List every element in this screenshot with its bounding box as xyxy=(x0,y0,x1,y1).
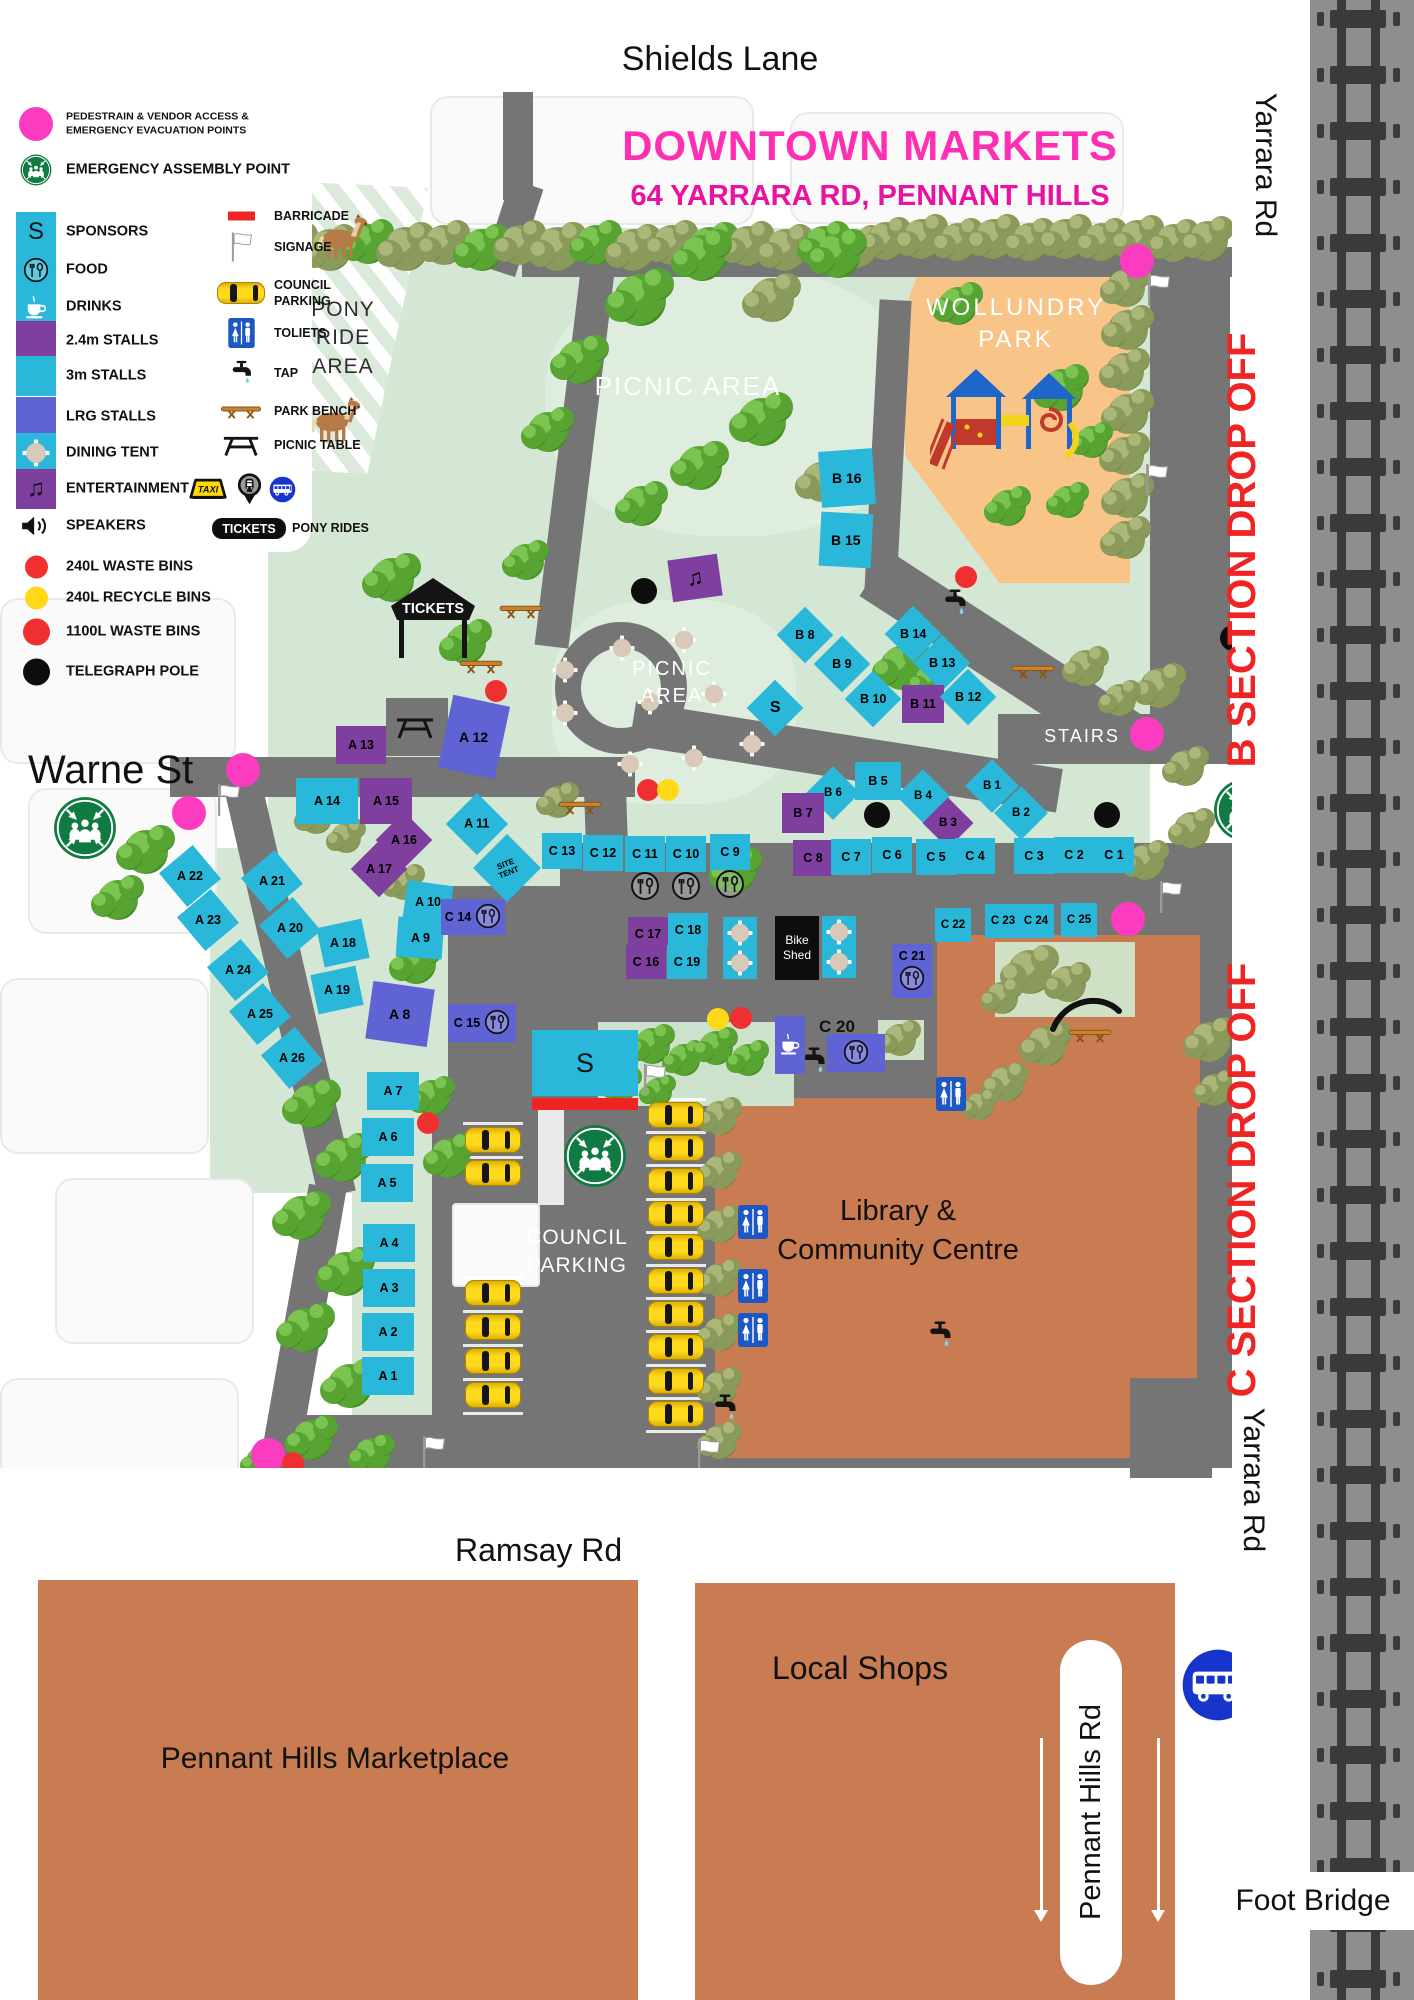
barricade xyxy=(532,1098,638,1110)
railway-bolt xyxy=(1317,1188,1324,1202)
stall-label: A 12 xyxy=(459,729,488,745)
parking-walkway xyxy=(538,1100,564,1205)
council-parking-label: COUNCILPARKING xyxy=(487,1224,667,1281)
stall-label: S xyxy=(770,699,781,717)
railway-bolt xyxy=(1393,12,1400,26)
food-icon xyxy=(484,1009,510,1038)
railway-bolt xyxy=(1393,964,1400,978)
railway-bolt xyxy=(1393,1692,1400,1706)
dining-tent xyxy=(723,917,757,979)
stall-label: B 3 xyxy=(939,817,957,829)
waste-bin-dot xyxy=(417,1112,439,1134)
legend-label: PICNIC TABLE xyxy=(274,437,361,453)
market-map: TICKETSA 13A 12A 14A 15A 16A 17A 11A 22A… xyxy=(0,0,1414,2000)
tree xyxy=(280,1196,324,1240)
stall-label: A 21 xyxy=(259,874,285,888)
railway-bolt xyxy=(1317,12,1324,26)
waste-bin-dot xyxy=(955,566,977,588)
dining-table-icon xyxy=(552,657,578,688)
page-subtitle: 64 YARRARA RD, PENNANT HILLS xyxy=(560,180,1180,213)
recycle-bin-dot xyxy=(657,779,679,801)
stall-c25: C 25 xyxy=(1061,903,1097,937)
tree xyxy=(284,1308,328,1352)
tree xyxy=(331,823,361,853)
legend-label: DINING TENT xyxy=(66,444,159,463)
railway-bolt xyxy=(1393,1076,1400,1090)
tree xyxy=(1174,812,1210,848)
signage-flag-icon xyxy=(641,1063,667,1102)
stall-label: B 14 xyxy=(900,627,926,641)
traffic-arrow-down xyxy=(1157,1738,1160,1918)
railway-bolt xyxy=(1393,1748,1400,1762)
railway-bolt xyxy=(1393,404,1400,418)
stall-label: C 24 xyxy=(1024,915,1048,927)
taxi-car xyxy=(465,1280,521,1306)
tree xyxy=(614,274,666,326)
railway-bolt xyxy=(1317,1300,1324,1314)
tree xyxy=(966,1092,994,1120)
tree xyxy=(750,278,794,322)
railway-bolt xyxy=(1393,1020,1400,1034)
parking-slot-line xyxy=(463,1378,523,1381)
stall-label: A 14 xyxy=(314,794,340,808)
signage-flag-icon xyxy=(1145,273,1171,312)
stall-label: A 18 xyxy=(330,936,356,950)
pennant-hills-rd-label: Pennant Hills Rd xyxy=(1061,1642,1121,1982)
tree xyxy=(1076,426,1108,458)
railway-bolt xyxy=(1393,1188,1400,1202)
railway-bolt xyxy=(1393,684,1400,698)
railway-bolt xyxy=(1317,1636,1324,1650)
legend-label: DRINKS xyxy=(66,298,122,317)
railway-bolt xyxy=(1317,740,1324,754)
tree xyxy=(703,1155,737,1189)
railway-bolt xyxy=(1393,180,1400,194)
sponsors-icon: S xyxy=(14,212,58,252)
stall-c2: C 2 xyxy=(1054,837,1094,873)
svg-text:TICKETS: TICKETS xyxy=(402,601,464,617)
stairs-label: STAIRS xyxy=(1022,726,1142,747)
stall-label: A 19 xyxy=(324,983,350,997)
legend-label: BARRICADE xyxy=(274,208,349,224)
railway-bolt xyxy=(1317,124,1324,138)
railway-bolt xyxy=(1393,1412,1400,1426)
stall-a14: A 14 xyxy=(296,778,358,824)
stall-c23: C 23 xyxy=(985,904,1021,938)
stall-label: C 10 xyxy=(673,847,699,861)
waste-bin-dot xyxy=(485,680,507,702)
railway-bolt xyxy=(1393,1132,1400,1146)
stall-label: B 8 xyxy=(795,628,814,642)
stall-b5: B 5 xyxy=(855,762,901,800)
tree xyxy=(1140,668,1180,708)
stall-label: A 13 xyxy=(348,738,374,752)
railway-bolt xyxy=(1317,1020,1324,1034)
stall-label: A 26 xyxy=(279,1051,305,1065)
stall-label: B 16 xyxy=(832,470,862,486)
dining-table-icon xyxy=(681,745,707,776)
taxi-car xyxy=(465,1348,521,1374)
stall xyxy=(775,1016,805,1074)
railway-bolt xyxy=(1393,124,1400,138)
legend-label: 240L WASTE BINS xyxy=(66,558,193,577)
stall-label: A 11 xyxy=(464,817,489,831)
tree xyxy=(679,235,725,281)
stall-label: B 13 xyxy=(929,656,955,670)
stall: ♫ xyxy=(667,554,722,603)
stall-label: A 2 xyxy=(379,1325,398,1339)
railway-bolt xyxy=(1317,516,1324,530)
signage-flag-icon xyxy=(1143,463,1169,502)
stall-b7: B 7 xyxy=(782,793,824,833)
railway-bolt xyxy=(1317,628,1324,642)
picnic-table-icon xyxy=(394,714,436,745)
tree xyxy=(986,982,1018,1014)
stall-c24: C 24 xyxy=(1018,904,1054,938)
library-label: Library &Community Centre xyxy=(733,1192,1063,1270)
stall-label: B 6 xyxy=(824,787,842,799)
telegraph-pole-dot xyxy=(864,802,890,828)
stall-label: C 25 xyxy=(1067,914,1091,926)
stall-b15: B 15 xyxy=(819,512,874,569)
stall-label: A 20 xyxy=(277,921,303,935)
tap-icon xyxy=(940,588,970,623)
tree xyxy=(430,1138,470,1178)
taxi-car xyxy=(648,1368,704,1394)
stall-label: C 2 xyxy=(1064,848,1083,862)
waste-bin-dot xyxy=(637,779,659,801)
stall-label: C 7 xyxy=(841,850,860,864)
food-icon xyxy=(715,869,745,904)
tree xyxy=(1107,521,1145,559)
stall-a7: A 7 xyxy=(367,1072,419,1110)
stall-c7: C 7 xyxy=(831,839,871,875)
parking-slot-line xyxy=(646,1164,706,1167)
stall-label: C 8 xyxy=(803,851,822,865)
council-parking-icon xyxy=(212,282,270,304)
access-point-dot xyxy=(1120,244,1154,278)
railway-bolt xyxy=(1317,572,1324,586)
barricade-icon xyxy=(212,212,270,221)
tree xyxy=(703,1263,737,1297)
railway-bolt xyxy=(1393,628,1400,642)
railway-bolt xyxy=(1393,740,1400,754)
stall-c3: C 3 xyxy=(1014,838,1054,874)
access-point-dot xyxy=(1111,902,1145,936)
legend-label: LRG STALLS xyxy=(66,408,156,427)
stall-c8: C 8 xyxy=(793,840,833,876)
railway-bolt xyxy=(1317,1468,1324,1482)
waste-bin-icon xyxy=(14,556,58,579)
picnic-area-2-label: PICNICAREA xyxy=(592,656,752,710)
stall-label: C 13 xyxy=(549,844,575,858)
railway-bolt xyxy=(1317,1580,1324,1594)
railway-bolt xyxy=(1393,796,1400,810)
railway-bolt xyxy=(1317,404,1324,418)
railway-bolt xyxy=(1317,1132,1324,1146)
stall-label: A 16 xyxy=(391,833,417,847)
stall-label: C 4 xyxy=(965,849,984,863)
railway-bolt xyxy=(1317,1356,1324,1370)
railway-bolt xyxy=(1393,1804,1400,1818)
tree xyxy=(884,1024,916,1056)
tree xyxy=(528,412,568,452)
railway-bolt xyxy=(1393,1244,1400,1258)
legend-label: SPONSORS xyxy=(66,223,148,242)
railway-bolt xyxy=(1317,460,1324,474)
railway-bolt xyxy=(1317,180,1324,194)
railway-bolt xyxy=(1317,964,1324,978)
railway-bolt xyxy=(1393,852,1400,866)
railway-bolt xyxy=(1317,1972,1324,1986)
railway-bolt xyxy=(1393,1300,1400,1314)
drinks-icon xyxy=(778,1032,802,1059)
railway-bolt xyxy=(1393,236,1400,250)
dining-table-icon xyxy=(617,751,643,782)
stall-label: C 23 xyxy=(991,915,1015,927)
railway-rail xyxy=(1337,0,1346,2000)
taxi-car xyxy=(648,1301,704,1327)
stall-label: A 9 xyxy=(411,931,430,945)
sponsor-box: S xyxy=(532,1030,638,1096)
stall-label: B 11 xyxy=(910,697,936,711)
access-point-dot xyxy=(226,753,260,787)
stall-label: C 16 xyxy=(633,955,659,969)
site-tent-label: SITETENT xyxy=(494,856,520,881)
stall-label: B 10 xyxy=(860,692,886,706)
legend-label: SPEAKERS xyxy=(66,517,146,536)
stall-c12: C 12 xyxy=(583,835,623,871)
speakers-icon xyxy=(14,514,58,538)
taxi-car xyxy=(648,1401,704,1427)
traffic-arrow-down xyxy=(1040,1738,1043,1918)
stall-3m-icon xyxy=(14,356,58,396)
street-shields-lane: Shields Lane xyxy=(600,40,840,79)
railway-bolt xyxy=(1317,1412,1324,1426)
stall-label: B 9 xyxy=(832,657,851,671)
b-section-drop-off: B SECTION DROP OFF xyxy=(1220,250,1266,850)
pennant-hills-marketplace-building xyxy=(38,1580,638,2000)
railway-bolt xyxy=(1393,68,1400,82)
stall-label: B 15 xyxy=(831,532,861,548)
tree xyxy=(1106,353,1144,391)
stall-label: A 6 xyxy=(379,1130,398,1144)
food-icon xyxy=(671,871,701,906)
stall-a2: A 2 xyxy=(362,1313,414,1351)
stall-label: A 5 xyxy=(378,1176,397,1190)
railway-bolt xyxy=(1317,684,1324,698)
dining-table-icon xyxy=(739,731,765,762)
railway-bolt xyxy=(1393,908,1400,922)
food-stall-icon xyxy=(14,250,58,290)
legend-label: PONY RIDES xyxy=(292,520,369,536)
tree xyxy=(703,1317,737,1351)
tap-icon xyxy=(710,1393,740,1428)
toilets-icon xyxy=(936,1077,966,1116)
transit-icons: TAXI xyxy=(212,472,270,506)
legend-label: TOLIETS xyxy=(274,325,327,341)
legend-label: PARK BENCH xyxy=(274,403,356,419)
legend-label: EMERGENCY ASSEMBLY POINT xyxy=(66,161,290,180)
stall xyxy=(827,1034,885,1072)
tree xyxy=(324,1252,368,1296)
parking-slot-line xyxy=(646,1297,706,1300)
railway-bolt xyxy=(1393,1468,1400,1482)
tree xyxy=(1068,650,1104,686)
playground xyxy=(930,357,1080,497)
stall-label: B 5 xyxy=(868,774,887,788)
stall-label: A 25 xyxy=(247,1007,273,1021)
stall-label: C 19 xyxy=(674,955,700,969)
railway-bolt xyxy=(1317,1804,1324,1818)
stall-c19: C 19 xyxy=(667,945,707,979)
legend-label: PEDESTRAIN & VENDOR ACCESS &EMERGENCY EV… xyxy=(66,110,249,137)
stall-label: A 10 xyxy=(415,895,441,909)
music-note-icon: ♫ xyxy=(685,564,705,592)
railway-bolt xyxy=(1393,292,1400,306)
wollundry-park-label: WOLLUNDRYPARK xyxy=(896,292,1136,357)
stall-c10: C 10 xyxy=(666,836,706,872)
park-bench-icon xyxy=(1011,662,1055,684)
parking-slot-line xyxy=(463,1310,523,1313)
stall-c11: C 11 xyxy=(625,836,665,872)
assembly-point-icon xyxy=(14,154,58,186)
toilets-icon xyxy=(212,318,270,348)
marketplace-label: Pennant Hills Marketplace xyxy=(110,1742,560,1776)
park-bench-icon xyxy=(212,403,270,419)
dining-tent-icon xyxy=(14,433,58,473)
stall-label: C 22 xyxy=(941,919,965,931)
picnic-area-1-label: PICNIC AREA xyxy=(588,371,788,402)
stall-b11: B 11 xyxy=(902,685,944,723)
legend-label: FOOD xyxy=(66,261,108,280)
railway-bolt xyxy=(1317,292,1324,306)
stall-c5: C 5 xyxy=(916,839,956,875)
stall-label: C 18 xyxy=(675,923,701,937)
tree xyxy=(738,398,786,446)
legend-label: TELEGRAPH POLE xyxy=(66,663,199,682)
railway-bolt xyxy=(1393,1524,1400,1538)
stall-a5: A 5 xyxy=(361,1164,413,1202)
railway-bolt xyxy=(1317,1076,1324,1090)
railway-bolt xyxy=(1317,1244,1324,1258)
stall-label: C 5 xyxy=(926,850,945,864)
tree xyxy=(622,486,662,526)
emergency-assembly-point xyxy=(563,1124,627,1193)
railway-rail xyxy=(1371,0,1380,2000)
tree xyxy=(678,446,722,490)
railway-bolt xyxy=(1393,348,1400,362)
park-bench-icon xyxy=(499,602,543,624)
stall-c6: C 6 xyxy=(872,837,912,873)
street-ramsay-rd: Ramsay Rd xyxy=(455,1532,675,1569)
stall-a3: A 3 xyxy=(363,1269,415,1307)
stall-label: C 3 xyxy=(1024,849,1043,863)
railway-bolt xyxy=(1393,1356,1400,1370)
railway-bolt xyxy=(1317,1524,1324,1538)
stall-label: C 12 xyxy=(590,846,616,860)
tap-icon xyxy=(212,360,270,387)
stall-label: A 1 xyxy=(379,1369,398,1383)
library-community-centre-building xyxy=(715,1098,1197,1458)
garden-arc xyxy=(1047,991,1123,1038)
taxi-car xyxy=(648,1102,704,1128)
legend-label: 2.4m STALLS xyxy=(66,332,158,351)
parking-slot-line xyxy=(646,1131,706,1134)
access-point-icon xyxy=(14,107,58,141)
tickets-pill: TICKETS xyxy=(212,518,286,539)
taxi-car xyxy=(465,1127,521,1153)
stall-label: C 9 xyxy=(720,845,739,859)
legend-label: ENTERTAINMENT xyxy=(66,480,189,499)
street-yarrara-rd-top: Yarrara Rd xyxy=(1242,85,1282,245)
stall-c4: C 4 xyxy=(955,838,995,874)
toilets-icon xyxy=(738,1269,768,1308)
railway-bolt xyxy=(1317,852,1324,866)
sponsor-letter: S xyxy=(576,1048,594,1079)
railway-bolt xyxy=(1317,68,1324,82)
access-point-dot xyxy=(251,1438,285,1472)
local-shops-label: Local Shops xyxy=(740,1650,980,1687)
stall-label: A 24 xyxy=(225,963,251,977)
stall-c15: C 15 xyxy=(448,1004,516,1042)
railway-bolt xyxy=(1317,1692,1324,1706)
stall-label: A 15 xyxy=(373,794,399,808)
svg-text:TAXI: TAXI xyxy=(198,484,219,494)
stall-label: A 17 xyxy=(366,862,392,876)
legend-label: COUNCILPARKING xyxy=(274,277,331,310)
c-section-drop-off: C SECTION DROP OFF xyxy=(1220,880,1266,1480)
tickets-tent: TICKETS xyxy=(385,574,481,667)
dining-tent xyxy=(822,916,856,978)
stall-a8: A 8 xyxy=(365,981,434,1047)
tree xyxy=(816,234,860,278)
tree xyxy=(414,1080,450,1116)
stall-label: B 1 xyxy=(983,780,1001,792)
stall-label: C 14 xyxy=(445,910,471,924)
telegraph-pole-dot xyxy=(631,578,657,604)
entertainment-icon: ♫ xyxy=(14,469,58,509)
stall-label: C 1 xyxy=(1104,848,1123,862)
railway-bolt xyxy=(1317,348,1324,362)
railway-bolt xyxy=(1393,1580,1400,1594)
food-icon xyxy=(899,965,925,994)
dining-table-icon xyxy=(552,700,578,731)
street-warne-st: Warne St xyxy=(28,748,208,793)
stall-c14: C 14 xyxy=(441,899,505,935)
stall-label: A 8 xyxy=(389,1006,410,1022)
railway-bolt xyxy=(1317,236,1324,250)
stall-label: A 3 xyxy=(380,1281,399,1295)
stall-c18: C 18 xyxy=(668,913,708,947)
legend-label: 3m STALLS xyxy=(66,367,146,386)
railway-bolt xyxy=(1393,572,1400,586)
legend-label: SIGNAGE xyxy=(274,239,332,255)
railway-bolt xyxy=(1393,460,1400,474)
railway-bolt xyxy=(1393,1972,1400,1986)
signage-flag-icon xyxy=(212,232,270,263)
stall-c22: C 22 xyxy=(935,908,971,942)
park-bench-icon xyxy=(558,798,602,820)
tree xyxy=(1106,437,1144,475)
stall-label: C 17 xyxy=(635,927,661,941)
stall-24m-icon xyxy=(14,321,58,361)
tap-icon xyxy=(925,1320,955,1355)
telegraph-pole-dot xyxy=(1094,802,1120,828)
tree xyxy=(322,1138,366,1182)
legend-label: TAP xyxy=(274,365,298,381)
parking-slot-line xyxy=(463,1156,523,1159)
